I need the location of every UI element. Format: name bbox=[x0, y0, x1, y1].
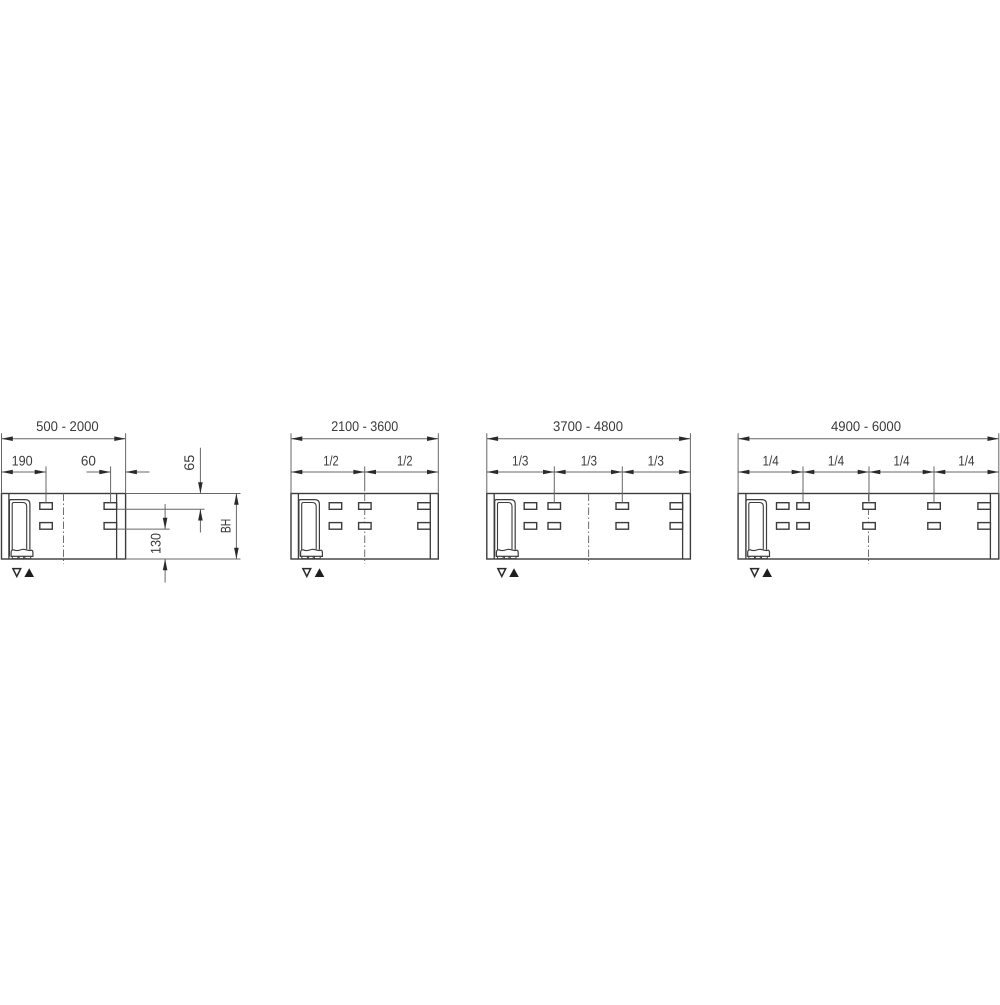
svg-text:1/3: 1/3 bbox=[512, 453, 528, 469]
svg-text:1/4: 1/4 bbox=[893, 453, 909, 469]
svg-text:BH: BH bbox=[218, 519, 234, 534]
svg-text:500 - 2000: 500 - 2000 bbox=[36, 418, 99, 434]
svg-text:1/4: 1/4 bbox=[762, 453, 778, 469]
svg-text:60: 60 bbox=[81, 453, 96, 469]
svg-text:130: 130 bbox=[147, 533, 163, 554]
svg-text:1/4: 1/4 bbox=[958, 453, 974, 469]
svg-text:1/3: 1/3 bbox=[648, 453, 664, 469]
svg-text:4900 - 6000: 4900 - 6000 bbox=[831, 418, 901, 434]
svg-text:2100 - 3600: 2100 - 3600 bbox=[331, 418, 398, 434]
svg-text:1/2: 1/2 bbox=[323, 453, 339, 469]
svg-text:65: 65 bbox=[181, 454, 197, 470]
svg-text:1/4: 1/4 bbox=[828, 453, 844, 469]
svg-text:190: 190 bbox=[12, 453, 33, 469]
svg-text:1/2: 1/2 bbox=[397, 453, 413, 469]
svg-text:1/3: 1/3 bbox=[581, 453, 597, 469]
svg-text:3700 - 4800: 3700 - 4800 bbox=[553, 418, 623, 434]
